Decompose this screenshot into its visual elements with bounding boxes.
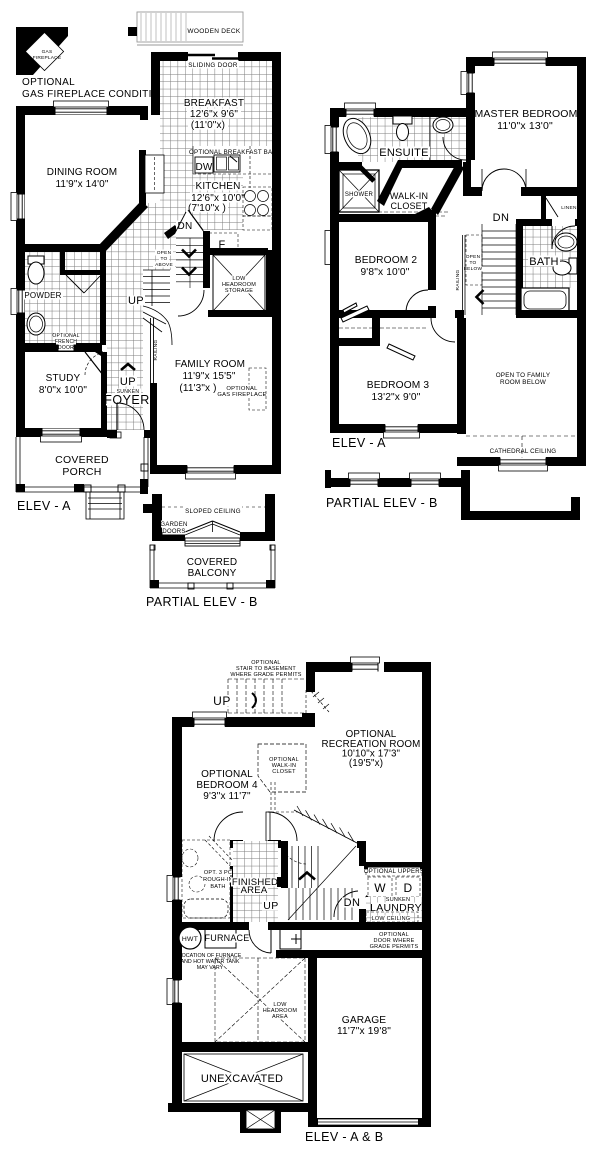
svg-text:SLOPED CEILING: SLOPED CEILING bbox=[185, 508, 241, 515]
svg-text:PORCH: PORCH bbox=[62, 466, 101, 478]
svg-text:OPT. 3 PC: OPT. 3 PC bbox=[204, 870, 232, 876]
svg-text:BATH: BATH bbox=[529, 256, 559, 268]
svg-text:DW: DW bbox=[195, 162, 212, 173]
svg-text:CLOSET: CLOSET bbox=[272, 769, 296, 775]
svg-text:DN: DN bbox=[344, 897, 361, 909]
svg-text:ABOVE: ABOVE bbox=[155, 262, 173, 268]
svg-text:UP: UP bbox=[120, 376, 136, 388]
svg-text:UP: UP bbox=[213, 694, 231, 708]
svg-text:ROOM BELOW: ROOM BELOW bbox=[500, 379, 546, 386]
svg-text:BEDROOM 4: BEDROOM 4 bbox=[196, 780, 258, 791]
svg-text:DN: DN bbox=[177, 221, 192, 232]
svg-text:OPTIONAL UPPERS: OPTIONAL UPPERS bbox=[364, 869, 424, 875]
svg-text:AREA: AREA bbox=[241, 885, 268, 896]
svg-text:GAS: GAS bbox=[42, 49, 53, 55]
svg-text:AREA: AREA bbox=[272, 1014, 288, 1020]
svg-text:DINING ROOM: DINING ROOM bbox=[47, 167, 118, 178]
svg-text:BEDROOM 2: BEDROOM 2 bbox=[355, 255, 418, 266]
svg-text:GARAGE: GARAGE bbox=[342, 1015, 387, 1026]
svg-text:(7'10"x ): (7'10"x ) bbox=[188, 203, 226, 214]
svg-text:DN: DN bbox=[493, 212, 510, 224]
svg-text:ROUGH-IN: ROUGH-IN bbox=[203, 877, 233, 883]
svg-text:BATH: BATH bbox=[210, 884, 225, 890]
svg-text:UP: UP bbox=[128, 295, 144, 307]
svg-text:(11'3"x ): (11'3"x ) bbox=[179, 383, 216, 394]
svg-text:11'9"x 14'0": 11'9"x 14'0" bbox=[55, 179, 108, 190]
svg-text:LINEN: LINEN bbox=[561, 205, 577, 211]
svg-text:CLOSET: CLOSET bbox=[391, 201, 428, 211]
svg-text:W: W bbox=[374, 881, 386, 895]
svg-text:OPTIONAL: OPTIONAL bbox=[201, 769, 253, 780]
svg-text:GRADE PERMITS: GRADE PERMITS bbox=[370, 944, 419, 950]
svg-text:WHERE GRADE PERMITS: WHERE GRADE PERMITS bbox=[230, 672, 301, 678]
svg-text:WOODEN DECK: WOODEN DECK bbox=[187, 28, 240, 35]
svg-text:UNEXCAVATED: UNEXCAVATED bbox=[201, 1073, 283, 1085]
svg-text:RAILING: RAILING bbox=[153, 340, 159, 361]
svg-text:OPTIONAL: OPTIONAL bbox=[22, 77, 75, 88]
svg-text:9'8"x 10'0": 9'8"x 10'0" bbox=[360, 267, 409, 278]
svg-text:GAS FIREPLACE: GAS FIREPLACE bbox=[217, 392, 266, 398]
svg-text:DOORS: DOORS bbox=[162, 529, 185, 535]
svg-text:ELEV - A & B: ELEV - A & B bbox=[305, 1130, 383, 1144]
svg-text:8'0"x 10'0": 8'0"x 10'0" bbox=[39, 385, 87, 396]
svg-text:BALCONY: BALCONY bbox=[188, 568, 237, 579]
svg-text:(11'0"x): (11'0"x) bbox=[191, 120, 225, 131]
svg-text:MAY VARY: MAY VARY bbox=[197, 965, 224, 971]
svg-text:12'6"x 9'6": 12'6"x 9'6" bbox=[190, 109, 238, 120]
svg-text:BELOW: BELOW bbox=[464, 266, 483, 272]
svg-text:DOOR: DOOR bbox=[58, 345, 74, 351]
svg-text:TO: TO bbox=[160, 256, 167, 262]
svg-text:9'3"x 11'7": 9'3"x 11'7" bbox=[203, 791, 251, 802]
svg-text:ELEV - A: ELEV - A bbox=[332, 436, 386, 450]
svg-text:BEDROOM 3: BEDROOM 3 bbox=[367, 380, 430, 391]
svg-text:POWDER: POWDER bbox=[24, 291, 61, 300]
svg-text:FURNACE: FURNACE bbox=[205, 933, 250, 943]
svg-text:LOW CEILING: LOW CEILING bbox=[372, 916, 411, 922]
svg-text:STUDY: STUDY bbox=[46, 373, 81, 384]
svg-text:STORAGE: STORAGE bbox=[225, 288, 253, 294]
svg-text:11'9"x 15'5": 11'9"x 15'5" bbox=[182, 371, 235, 382]
svg-text:COVERED: COVERED bbox=[187, 557, 238, 568]
svg-text:GAS FIREPLACE CONDITION: GAS FIREPLACE CONDITION bbox=[22, 89, 167, 100]
svg-text:PARTIAL ELEV - B: PARTIAL ELEV - B bbox=[146, 595, 258, 609]
svg-text:11'7"x 19'8": 11'7"x 19'8" bbox=[337, 1026, 391, 1037]
svg-text:TO: TO bbox=[469, 260, 476, 266]
svg-text:FAMILY ROOM: FAMILY ROOM bbox=[175, 359, 245, 370]
svg-text:FIREPLACE: FIREPLACE bbox=[33, 55, 61, 61]
svg-text:GARDEN: GARDEN bbox=[160, 522, 187, 528]
svg-text:COVERED: COVERED bbox=[55, 454, 109, 466]
svg-text:OPEN: OPEN bbox=[466, 254, 481, 260]
svg-text:ENSUITE: ENSUITE bbox=[379, 147, 428, 159]
svg-text:RAILING: RAILING bbox=[455, 270, 461, 291]
svg-text:OPEN TO FAMILY: OPEN TO FAMILY bbox=[496, 372, 551, 379]
svg-text:WALK-IN: WALK-IN bbox=[390, 191, 428, 201]
svg-text:11'0"x 13'0": 11'0"x 13'0" bbox=[497, 120, 553, 132]
svg-text:BREAKFAST: BREAKFAST bbox=[184, 98, 244, 109]
svg-text:PARTIAL ELEV - B: PARTIAL ELEV - B bbox=[326, 496, 438, 510]
svg-text:OPEN: OPEN bbox=[157, 250, 172, 256]
svg-text:D: D bbox=[404, 881, 413, 895]
svg-text:KITCHEN: KITCHEN bbox=[196, 181, 241, 192]
svg-text:13'2"x 9'0": 13'2"x 9'0" bbox=[371, 392, 420, 403]
svg-text:UP: UP bbox=[263, 900, 278, 912]
svg-text:CATHEDRAL CEILING: CATHEDRAL CEILING bbox=[490, 448, 557, 455]
svg-text:SHOWER: SHOWER bbox=[345, 192, 374, 198]
svg-text:MASTER BEDROOM: MASTER BEDROOM bbox=[474, 108, 577, 120]
svg-text:(19'5"x): (19'5"x) bbox=[349, 758, 383, 769]
svg-text:HWT: HWT bbox=[182, 936, 198, 943]
svg-text:SLIDING DOOR: SLIDING DOOR bbox=[188, 62, 238, 69]
svg-text:ELEV - A: ELEV - A bbox=[17, 499, 71, 513]
